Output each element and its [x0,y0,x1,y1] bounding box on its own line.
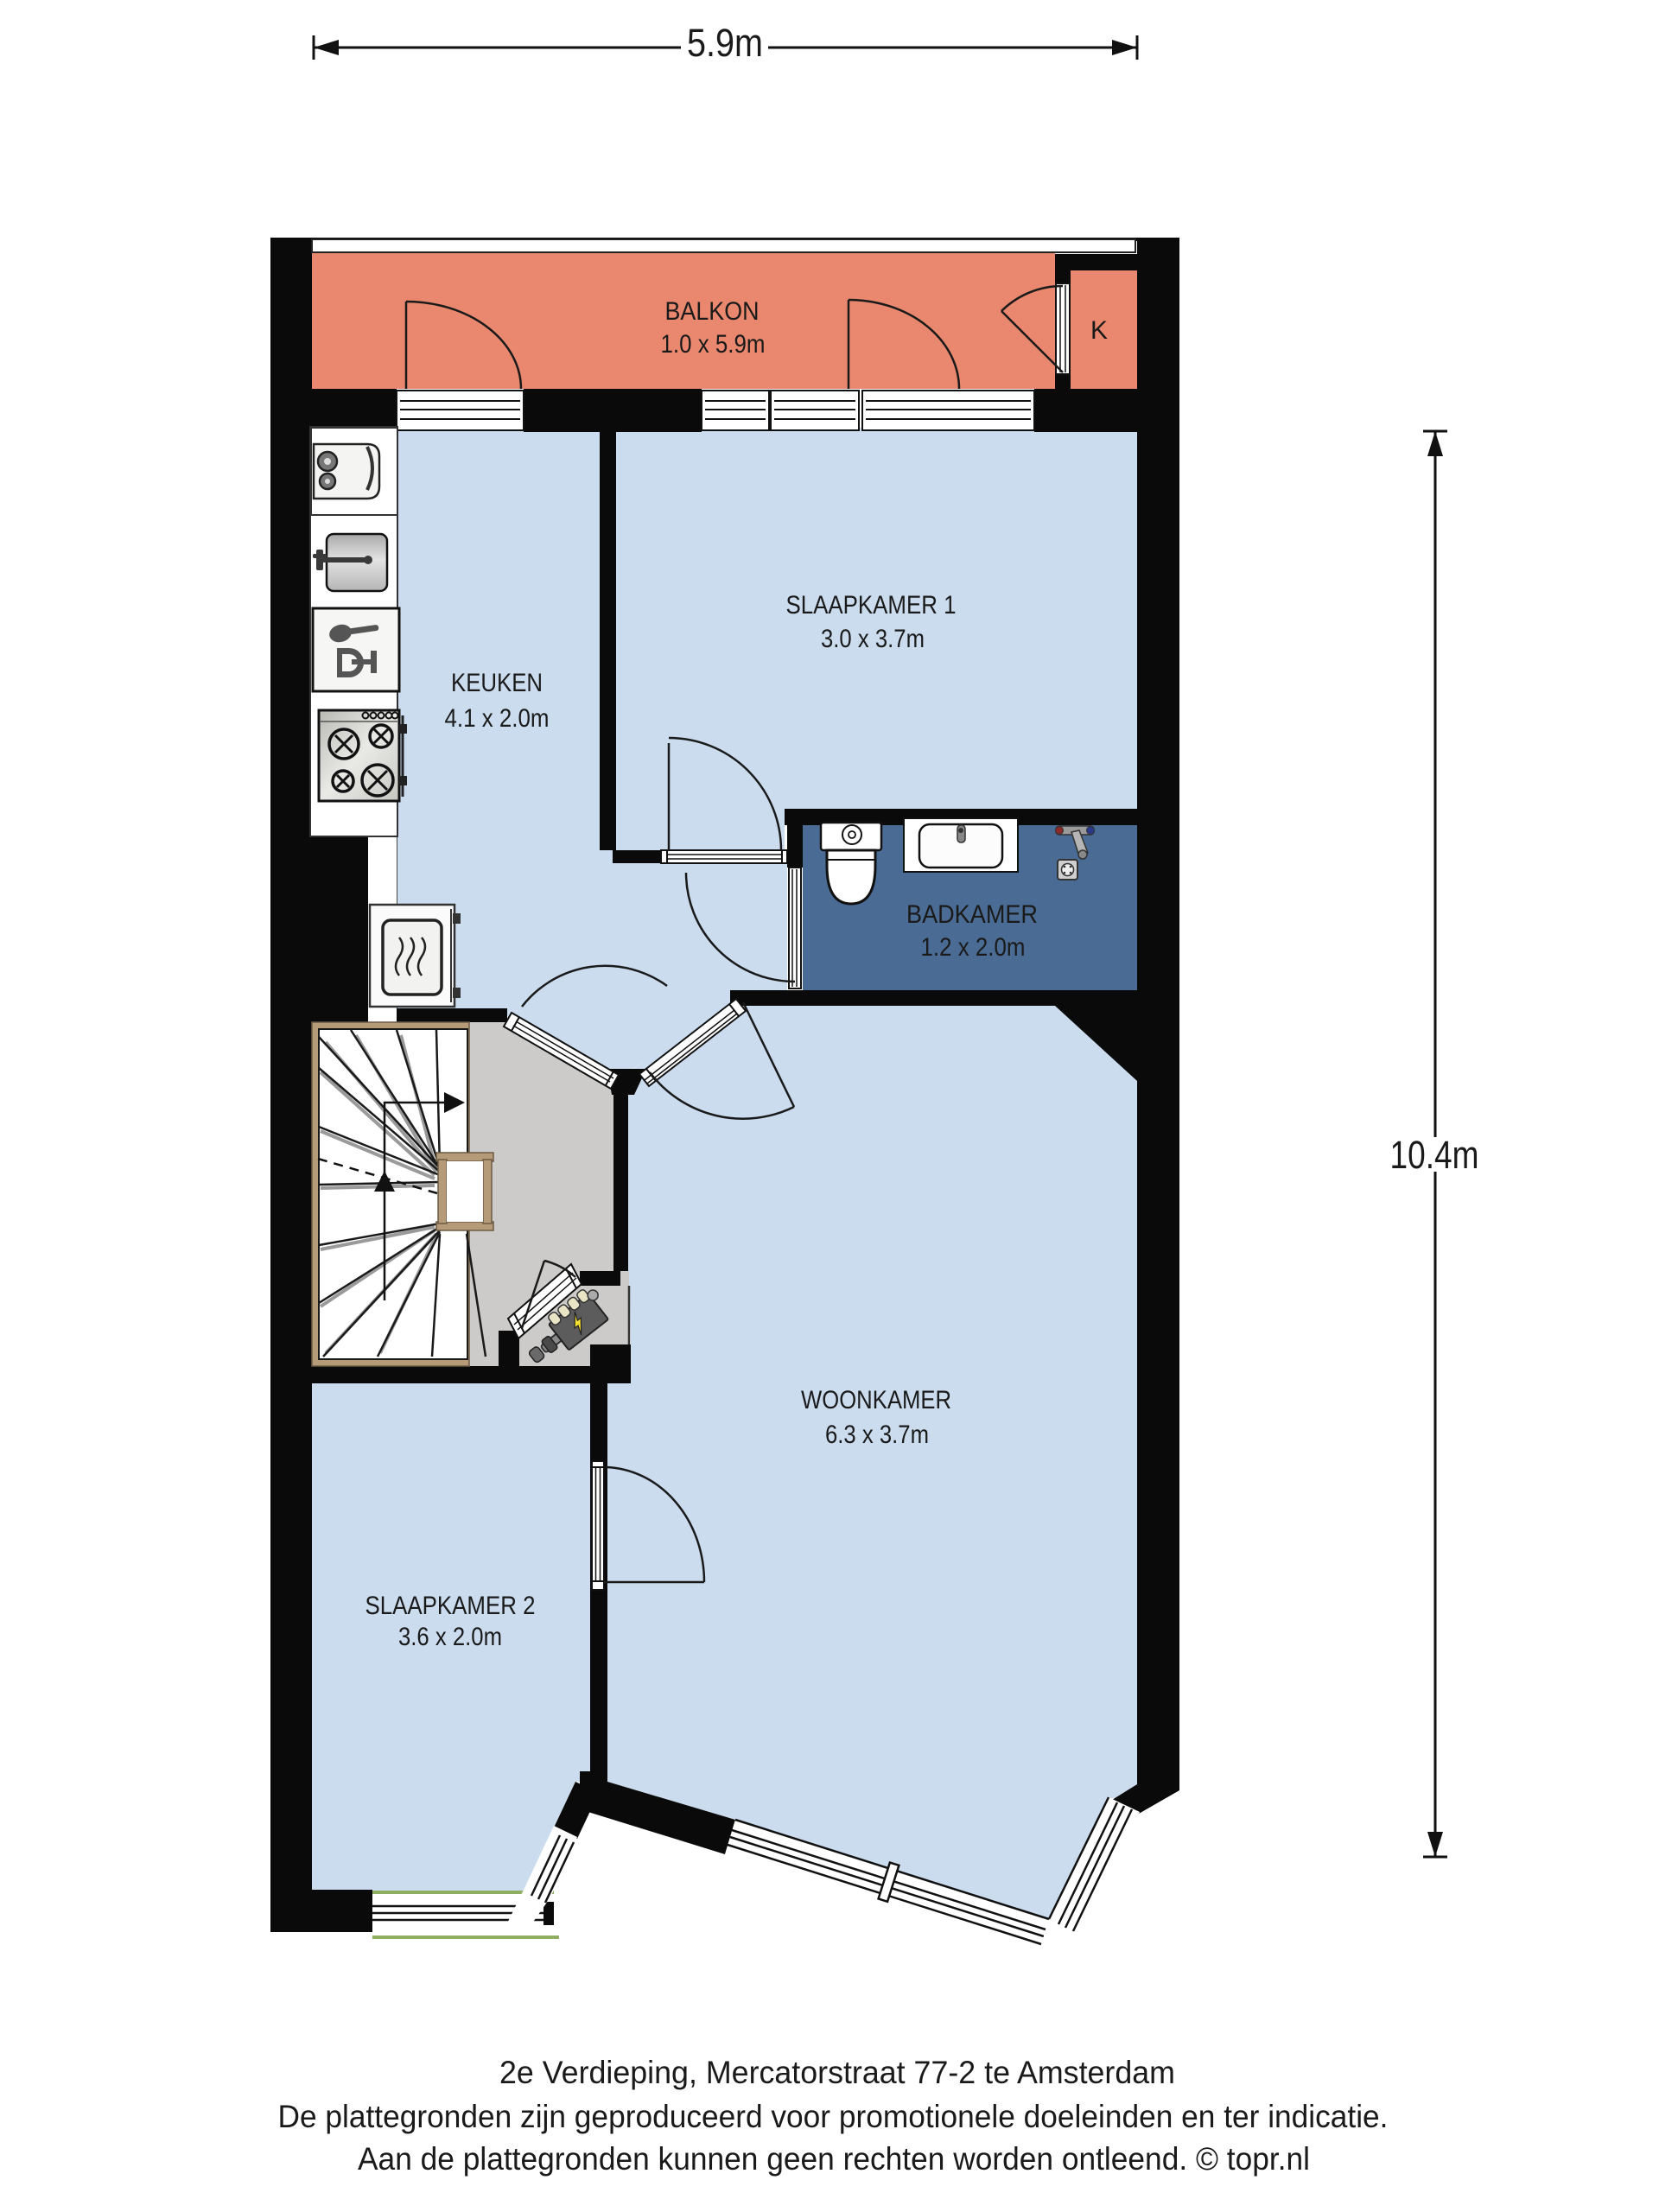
svg-text:K: K [1090,316,1108,345]
svg-text:4.1 x 2.0m: 4.1 x 2.0m [445,704,550,733]
svg-text:Aan de plattegronden kunnen ge: Aan de plattegronden kunnen geen rechten… [358,2141,1310,2177]
svg-text:1.2 x 2.0m: 1.2 x 2.0m [921,933,1026,962]
svg-text:2e Verdieping, Mercatorstraat: 2e Verdieping, Mercatorstraat 77-2 te Am… [499,2055,1175,2090]
svg-text:De plattegronden zijn geproduc: De plattegronden zijn geproduceerd voor … [278,2099,1389,2134]
svg-text:SLAAPKAMER 1: SLAAPKAMER 1 [786,591,957,620]
svg-text:1.0 x 5.9m: 1.0 x 5.9m [661,330,766,359]
svg-text:5.9m: 5.9m [687,21,763,65]
svg-text:SLAAPKAMER 2: SLAAPKAMER 2 [365,1592,536,1620]
svg-text:KEUKEN: KEUKEN [451,669,543,697]
svg-text:WOONKAMER: WOONKAMER [801,1386,951,1414]
svg-text:10.4m: 10.4m [1390,1133,1479,1177]
svg-text:3.0 x 3.7m: 3.0 x 3.7m [821,625,925,653]
svg-text:3.6 x 2.0m: 3.6 x 2.0m [398,1623,502,1651]
svg-text:BALKON: BALKON [665,297,760,326]
svg-text:6.3 x 3.7m: 6.3 x 3.7m [825,1421,929,1449]
svg-text:BADKAMER: BADKAMER [906,900,1038,929]
